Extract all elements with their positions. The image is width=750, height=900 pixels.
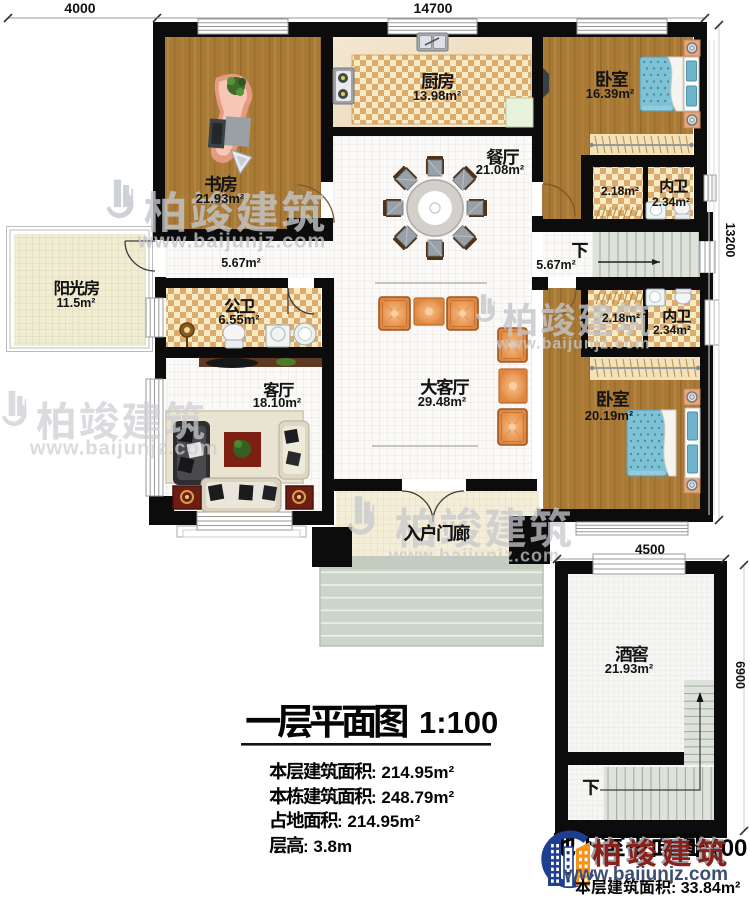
svg-text:: 248.79m²: : 248.79m² [371,788,454,807]
svg-text:www.baijunjz.com: www.baijunjz.com [388,546,560,566]
svg-text:13.98m²: 13.98m² [413,88,462,103]
svg-text:: 214.95m²: : 214.95m² [337,812,420,831]
svg-text:: 3.8m: : 3.8m [303,837,352,856]
svg-text:11.5m²: 11.5m² [57,296,96,310]
svg-text:21.93m²: 21.93m² [196,191,245,206]
svg-text:2.18m²: 2.18m² [602,311,640,325]
svg-text:6900: 6900 [733,661,747,689]
svg-text:: 214.95m²: : 214.95m² [371,763,454,782]
svg-text:5.67m²: 5.67m² [221,256,261,270]
svg-text:www.baijunjz.com: www.baijunjz.com [29,438,219,460]
svg-text:6.55m²: 6.55m² [218,312,260,327]
svg-text:1:100: 1:100 [419,705,498,740]
svg-text:20.19m²: 20.19m² [585,408,634,423]
svg-text:13200: 13200 [723,223,737,258]
svg-text:21.93m²: 21.93m² [605,661,654,676]
svg-text:16.39m²: 16.39m² [586,86,635,101]
svg-text:29.48m²: 29.48m² [418,394,467,409]
svg-text:www.baijunjz.com: www.baijunjz.com [495,336,650,353]
svg-text:5.67m²: 5.67m² [536,258,576,272]
svg-text:14700: 14700 [414,0,453,16]
svg-text:2.34m²: 2.34m² [653,323,691,337]
svg-text:www.baijunjz.com: www.baijunjz.com [137,230,327,252]
svg-text:4500: 4500 [635,542,665,557]
svg-text:: 33.84m²: : 33.84m² [671,880,740,897]
svg-text:21.08m²: 21.08m² [476,162,525,177]
svg-text:2.34m²: 2.34m² [652,195,690,209]
svg-text:2.18m²: 2.18m² [601,184,639,198]
svg-text:18.10m²: 18.10m² [253,395,302,410]
svg-text:4000: 4000 [64,0,95,16]
